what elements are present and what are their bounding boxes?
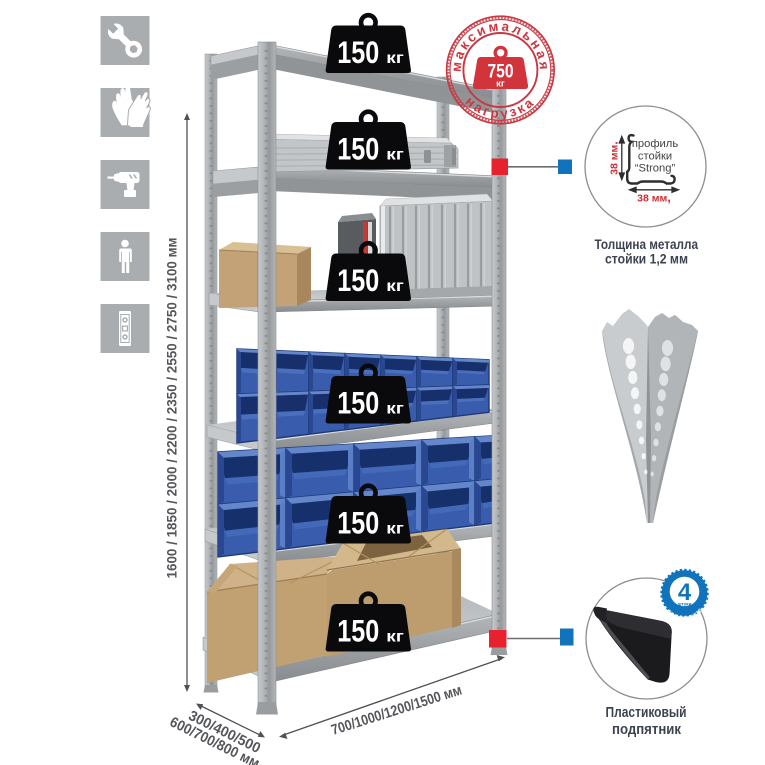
svg-text:кг: кг xyxy=(386,146,404,163)
svg-text:150: 150 xyxy=(337,612,379,648)
svg-text:кг: кг xyxy=(386,520,404,537)
svg-text:Толщина металла: Толщина металла xyxy=(595,237,699,252)
svg-text:кг: кг xyxy=(386,400,404,417)
svg-text:профильстойки“Strong”: профильстойки“Strong” xyxy=(632,138,678,175)
svg-text:подпятник: подпятник xyxy=(612,722,682,738)
svg-text:штуки: штуки xyxy=(678,602,692,607)
svg-text:кг: кг xyxy=(496,79,505,90)
svg-text:150: 150 xyxy=(337,130,379,166)
svg-text:150: 150 xyxy=(337,34,379,70)
svg-text:150: 150 xyxy=(337,384,379,420)
svg-text:150: 150 xyxy=(337,262,379,298)
svg-text:150: 150 xyxy=(337,504,379,540)
svg-text:38 мм.: 38 мм. xyxy=(606,141,621,175)
svg-text:кг: кг xyxy=(386,50,404,67)
svg-text:Пластиковый: Пластиковый xyxy=(606,705,687,721)
svg-text:1600 / 1850 / 2000 / 2200 / 23: 1600 / 1850 / 2000 / 2200 / 2350 / 2550 … xyxy=(165,238,180,579)
svg-text:38 мм,: 38 мм, xyxy=(637,190,671,205)
svg-text:стойки 1,2 мм: стойки 1,2 мм xyxy=(605,252,688,267)
svg-text:кг: кг xyxy=(386,278,404,295)
svg-text:кг: кг xyxy=(386,628,404,645)
